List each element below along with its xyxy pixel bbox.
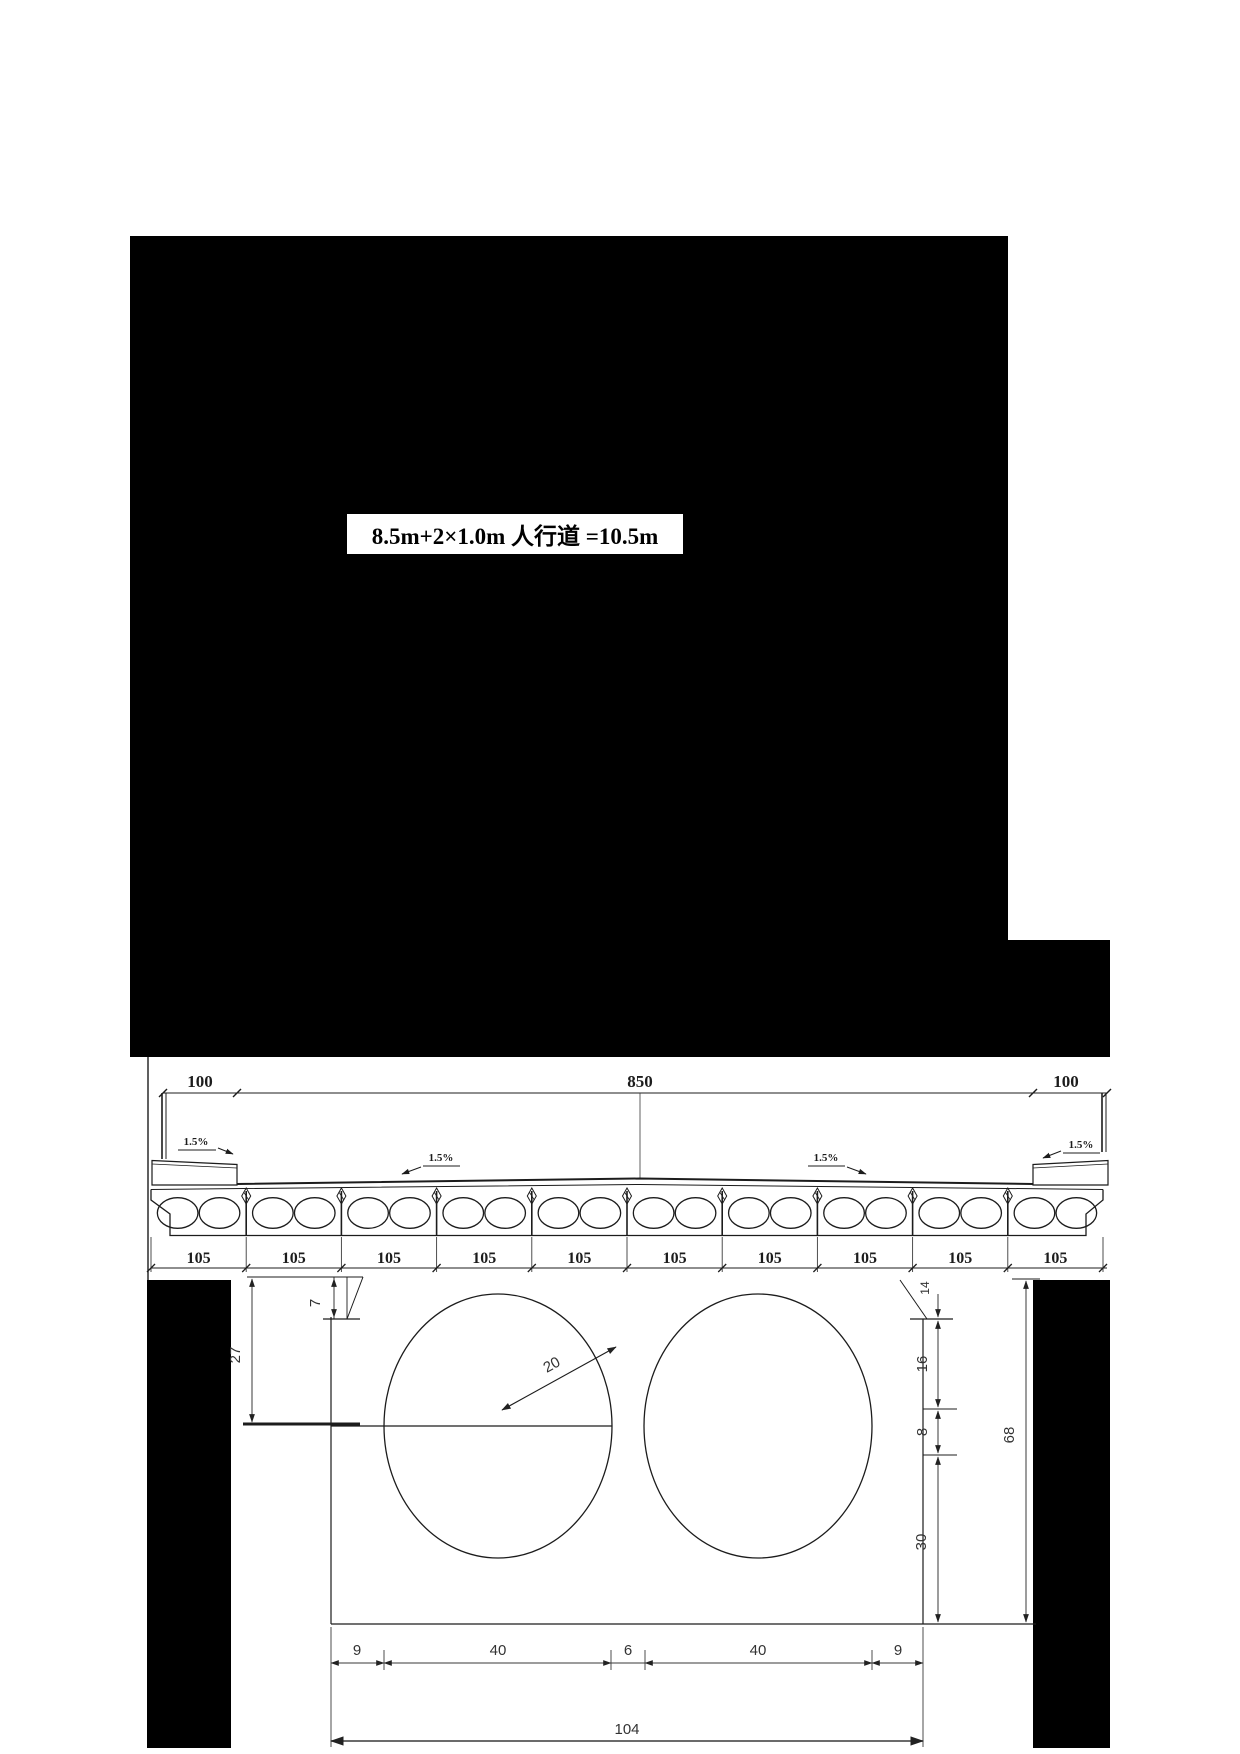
- right-void-oval: [644, 1294, 872, 1558]
- left-sidewalk-block: [152, 1161, 237, 1186]
- slope-annotation-left-sidewalk: 1.5%: [178, 1136, 233, 1154]
- slope-label: 1.5%: [814, 1152, 839, 1164]
- dim-30: 30: [913, 1534, 930, 1551]
- beam-void-circle: [729, 1198, 770, 1229]
- slope-label: 1.5%: [1069, 1139, 1094, 1151]
- dim-7: 7: [307, 1299, 324, 1307]
- slope-label: 1.5%: [429, 1152, 454, 1164]
- slope-annotation-left-roadway: 1.5%: [402, 1152, 460, 1174]
- slope-arrow: [218, 1148, 233, 1154]
- beam-width-dim-105: 105: [567, 1250, 591, 1267]
- beam-section-detail-drawing: 7 27 20 14 16 8 30 68: [130, 1270, 1110, 1754]
- beam-void-circle: [294, 1198, 335, 1229]
- radius-arrow: [502, 1347, 616, 1410]
- beam-void-circle: [1014, 1198, 1055, 1229]
- dim-20-radius: 20: [540, 1354, 563, 1377]
- beam-row-generated: 105105105105105105105105105105: [147, 1188, 1107, 1272]
- slope-arrow: [1043, 1151, 1061, 1158]
- right-sidewalk-block: [1033, 1161, 1108, 1186]
- beam-width-dim-105: 105: [1043, 1250, 1067, 1267]
- left-top-chamfer: [347, 1277, 363, 1319]
- beam-void-circle: [253, 1198, 294, 1229]
- dim-68: 68: [1001, 1427, 1018, 1444]
- beam-width-dim-105: 105: [187, 1250, 211, 1267]
- slope-arrow: [847, 1167, 866, 1174]
- beam-void-circle: [770, 1198, 811, 1229]
- beam-void-circle: [675, 1198, 716, 1229]
- beam-void-circle: [390, 1198, 431, 1229]
- beam-void-circle: [157, 1198, 198, 1229]
- beam-void-circle: [485, 1198, 526, 1229]
- beam-width-dim-105: 105: [948, 1250, 972, 1267]
- beam-void-circle: [961, 1198, 1002, 1229]
- right-sidewalk-top-line: [1033, 1164, 1108, 1168]
- dim-27: 27: [227, 1347, 244, 1364]
- dim-100-left: 100: [187, 1072, 213, 1091]
- beam-void-circle: [1056, 1198, 1097, 1229]
- dim-40-left: 40: [490, 1642, 507, 1659]
- beam-void-circle: [919, 1198, 960, 1229]
- beam-void-circle: [538, 1198, 579, 1229]
- slope-label: 1.5%: [184, 1136, 209, 1148]
- top-black-panel: [130, 236, 1008, 942]
- deck-surface: [237, 1179, 1033, 1185]
- dim-9-left: 9: [353, 1642, 361, 1659]
- beam-width-dim-105: 105: [377, 1250, 401, 1267]
- beam-width-dim-105: 105: [853, 1250, 877, 1267]
- dim-850-center: 850: [627, 1072, 653, 1091]
- beam-width-dim-105: 105: [282, 1250, 306, 1267]
- beam-void-circle: [580, 1198, 621, 1229]
- slope-annotation-right-roadway: 1.5%: [808, 1152, 866, 1174]
- beam-width-dim-105: 105: [663, 1250, 687, 1267]
- beam-void-circle: [824, 1198, 865, 1229]
- dim-8: 8: [914, 1428, 931, 1436]
- bridge-cross-section-drawing: 100 850 100 1.5% 1.5% 1.5%: [130, 1057, 1110, 1280]
- beam-width-dim-105: 105: [472, 1250, 496, 1267]
- mid-black-band: [130, 940, 1110, 1057]
- slope-annotation-right-sidewalk: 1.5%: [1043, 1139, 1100, 1158]
- dim-9-right: 9: [894, 1642, 902, 1659]
- beam-void-circle: [443, 1198, 484, 1229]
- beam-void-circle: [866, 1198, 907, 1229]
- dim-40-right: 40: [750, 1642, 767, 1659]
- page: 8.5m+2×1.0m 人行道 =10.5m 100 850 100: [0, 0, 1240, 1754]
- beam-void-circle: [633, 1198, 674, 1229]
- dim-100-right: 100: [1053, 1072, 1079, 1091]
- dim-14: 14: [918, 1281, 932, 1295]
- left-sidewalk-top-line: [152, 1164, 237, 1168]
- beam-width-dim-105: 105: [758, 1250, 782, 1267]
- beam-void-circle: [348, 1198, 389, 1229]
- slope-arrow: [402, 1167, 421, 1174]
- beam-void-circle: [199, 1198, 240, 1229]
- dim-104: 104: [614, 1721, 639, 1738]
- dim-6: 6: [624, 1642, 632, 1659]
- dim-16: 16: [914, 1356, 931, 1373]
- roadway-width-label: 8.5m+2×1.0m 人行道 =10.5m: [347, 514, 683, 554]
